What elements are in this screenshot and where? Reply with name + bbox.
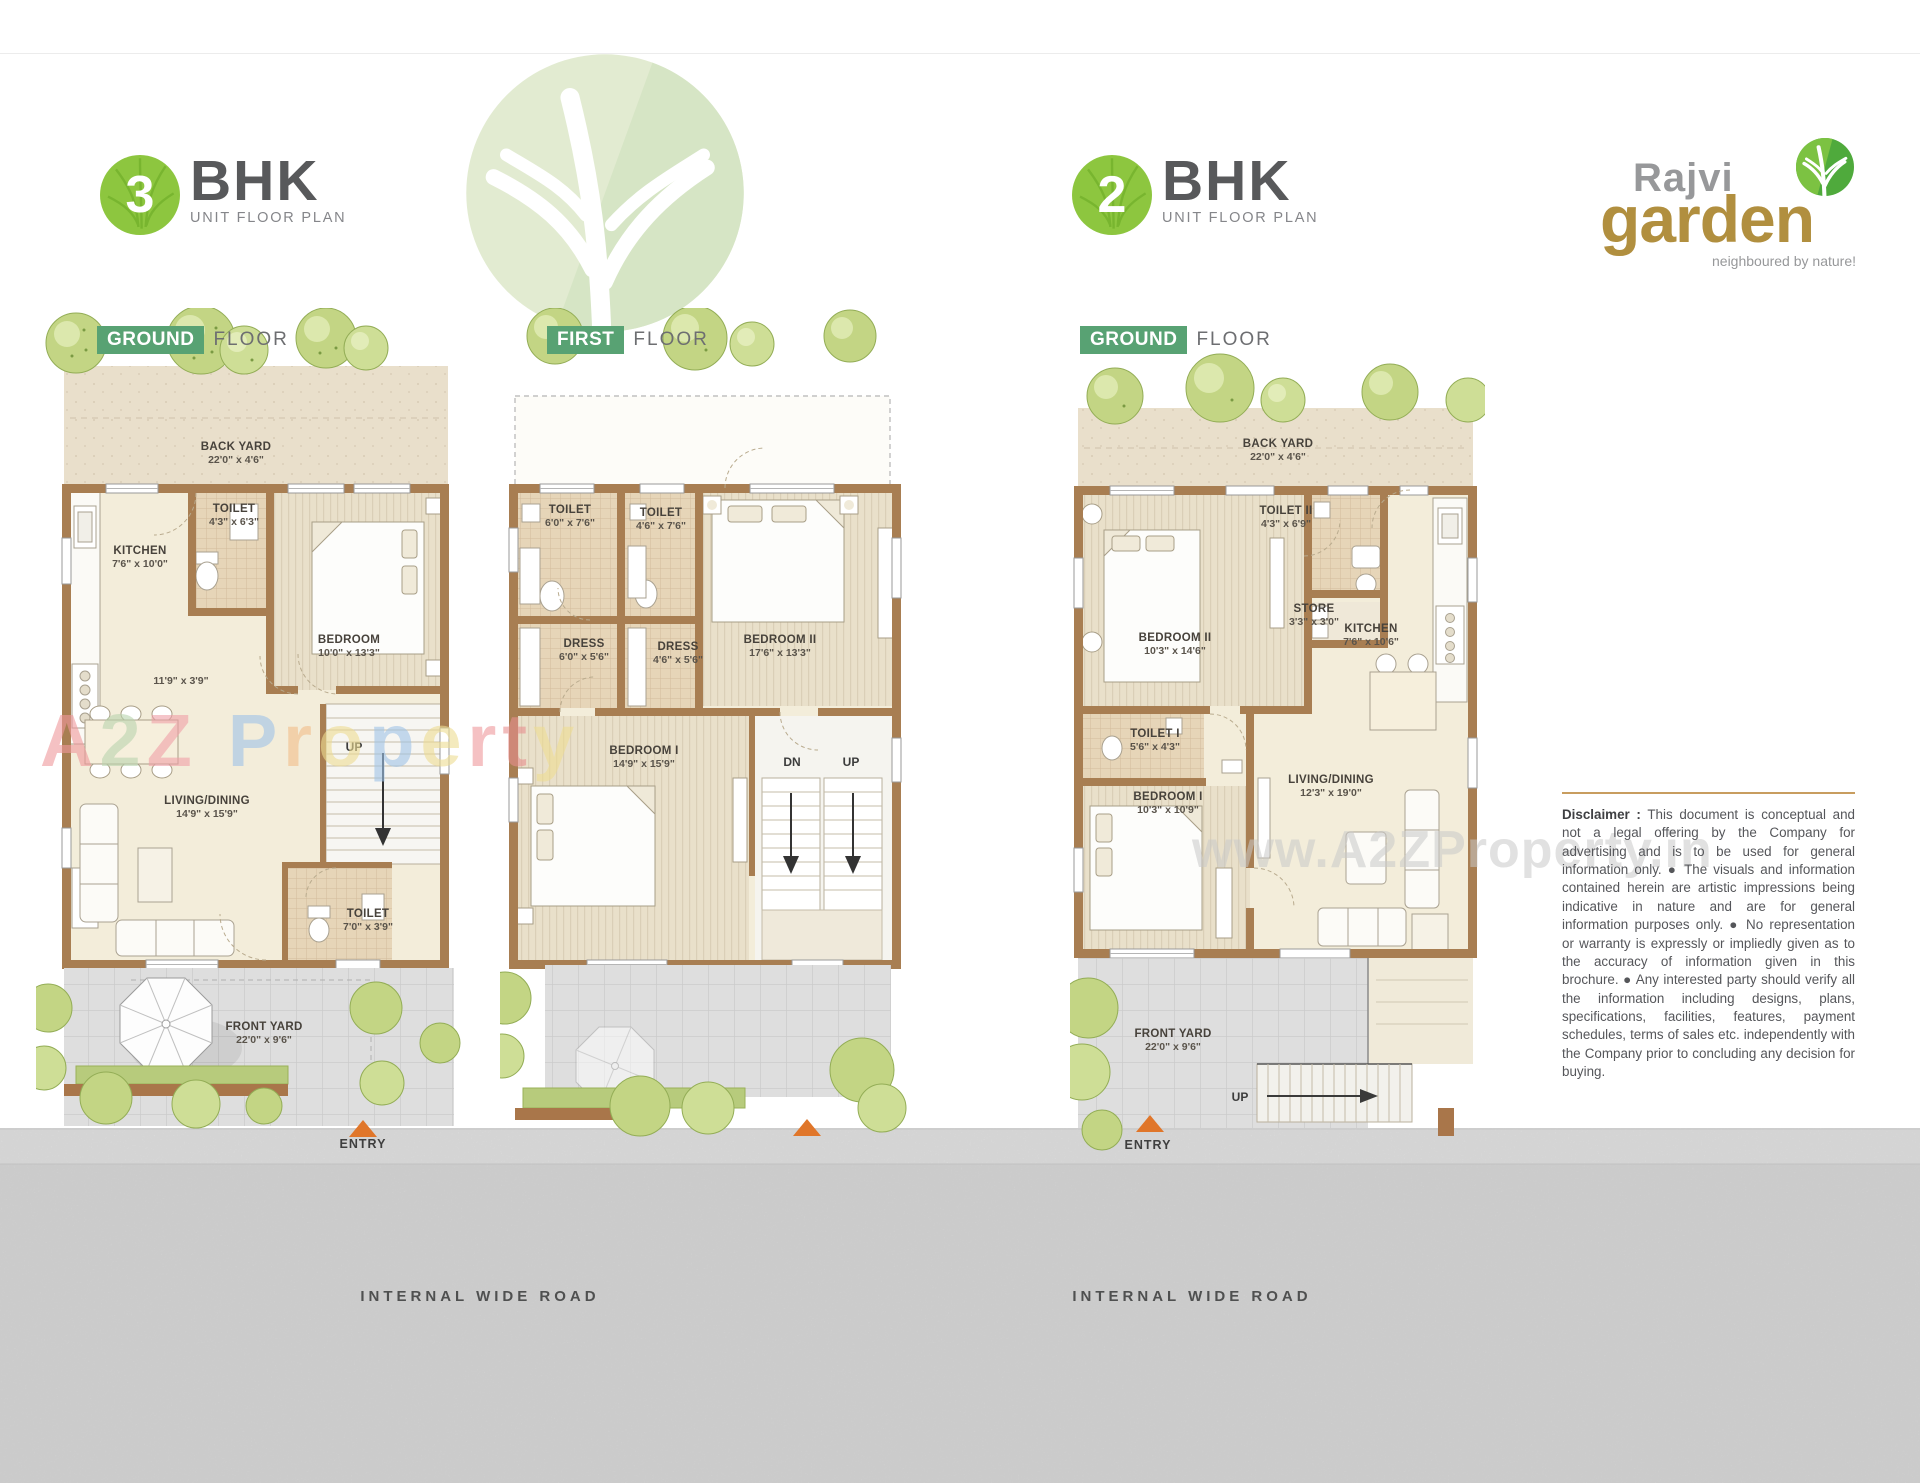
road-area [0, 1128, 1920, 1483]
floor-tag-box: GROUND [97, 326, 204, 354]
room-label-backyard: BACK YARD 22'0" x 4'6" [201, 441, 271, 466]
floor-tag-word: FLOOR [213, 329, 288, 351]
logo-brand-main: garden [1600, 195, 1860, 245]
room-label-frontyard: FRONT YARD 22'0" x 9'6" [225, 1021, 302, 1046]
disclaimer-rule [1562, 792, 1855, 794]
badge-bhk-label: BHK [1162, 155, 1318, 207]
terrace-outline [515, 396, 890, 488]
entry-label: ENTRY [1125, 1138, 1172, 1152]
front-staircase [1257, 1064, 1412, 1122]
floor-tag-box: FIRST [547, 326, 624, 354]
front-yard [500, 965, 906, 1136]
room-label-passage: 11'9" x 3'9" [153, 674, 208, 687]
brochure-page: 3 BHK UNIT FLOOR PLAN 2 BHK UNIT F [0, 0, 1920, 1483]
floor-tag-3bhk-first: FIRST FLOOR [547, 326, 709, 354]
badge-sublabel: UNIT FLOOR PLAN [190, 210, 346, 226]
room-label-kitchen: KITCHEN 7'6" x 10'0" [112, 545, 168, 570]
room-label-dress: DRESS 6'0" x 5'6" [558, 638, 610, 663]
pale-tree-watermark-icon [445, 53, 765, 333]
room-label-toilet: TOILET 7'0" x 3'9" [343, 908, 393, 933]
room-label-toilet: TOILET 6'0" x 7'6" [545, 504, 595, 529]
badge-number: 2 [1072, 155, 1152, 235]
backyard [64, 366, 448, 488]
leaf-circle-icon: 3 [100, 155, 180, 235]
page-top-divider [0, 53, 1920, 54]
stairs-up-label: UP [843, 755, 860, 769]
internal-road-label-right: INTERNAL WIDE ROAD [1072, 1288, 1311, 1305]
room-label-dress: DRESS 4'6" x 5'6" [652, 641, 704, 666]
umbrella-icon [120, 978, 212, 1070]
room-label-kitchen: KITCHEN 7'6" x 10'6" [1343, 623, 1399, 648]
floor-tag-box: GROUND [1080, 326, 1187, 354]
badge-sublabel: UNIT FLOOR PLAN [1162, 210, 1318, 226]
room-label-toilet: TOILET 4'6" x 7'6" [636, 507, 686, 532]
room-label-store: STORE 3'3" x 3'0" [1289, 603, 1339, 628]
floor-tag-2bhk-ground: GROUND FLOOR [1080, 326, 1272, 354]
room-label-backyard: BACK YARD 22'0" x 4'6" [1243, 438, 1313, 463]
room-label-toilet-1: TOILET I 5'6" x 4'3" [1130, 728, 1180, 753]
disclaimer-label: Disclaimer : [1562, 807, 1641, 822]
room-label-bedroom-1: BEDROOM I 14'9" x 15'9" [609, 745, 678, 770]
floor-tag-word: FLOOR [633, 329, 708, 351]
front-yard [36, 968, 460, 1128]
watermark-a2z-property: A2ZProperty [40, 698, 580, 783]
badge-2bhk: 2 BHK UNIT FLOOR PLAN [1072, 155, 1318, 235]
front-yard [1070, 958, 1473, 1150]
room-label-living-dining: LIVING/DINING 12'3" x 19'0" [1288, 774, 1374, 799]
entry-arrow-icon [793, 1119, 821, 1136]
disclaimer-body: This document is conceptual and not a le… [1562, 807, 1855, 1079]
badge-3bhk: 3 BHK UNIT FLOOR PLAN [100, 155, 346, 235]
rajvi-garden-logo: Rajvi garden neighboured by nature! [1600, 138, 1860, 269]
disclaimer-text: Disclaimer : This document is conceptual… [1562, 806, 1855, 1081]
room-label-bedroom-2: BEDROOM II 10'3" x 14'6" [1139, 632, 1212, 657]
room-label-frontyard: FRONT YARD 22'0" x 9'6" [1134, 1028, 1211, 1053]
badge-number: 3 [100, 155, 180, 235]
room-label-toilet: TOILET 4'3" x 6'3" [209, 503, 259, 528]
entry-label: ENTRY [340, 1137, 387, 1151]
badge-bhk-label: BHK [190, 155, 346, 207]
floor-tag-3bhk-ground: GROUND FLOOR [97, 326, 289, 354]
internal-road-label-left: INTERNAL WIDE ROAD [360, 1288, 599, 1305]
room-label-bedroom-2: BEDROOM II 17'6" x 13'3" [744, 634, 817, 659]
stairs-dn-label: DN [783, 755, 800, 769]
floor-tag-word: FLOOR [1196, 329, 1271, 351]
stairs-up-label: UP [1232, 1090, 1249, 1104]
leaf-circle-icon: 2 [1072, 155, 1152, 235]
room-label-bedroom-1: BEDROOM I 10'3" x 10'9" [1133, 791, 1202, 816]
room-label-bedroom: BEDROOM 10'0" x 13'3" [318, 634, 380, 659]
room-label-living-dining: LIVING/DINING 14'9" x 15'9" [164, 795, 250, 820]
room-label-toilet-2: TOILET II 4'3" x 6'9" [1260, 505, 1313, 530]
